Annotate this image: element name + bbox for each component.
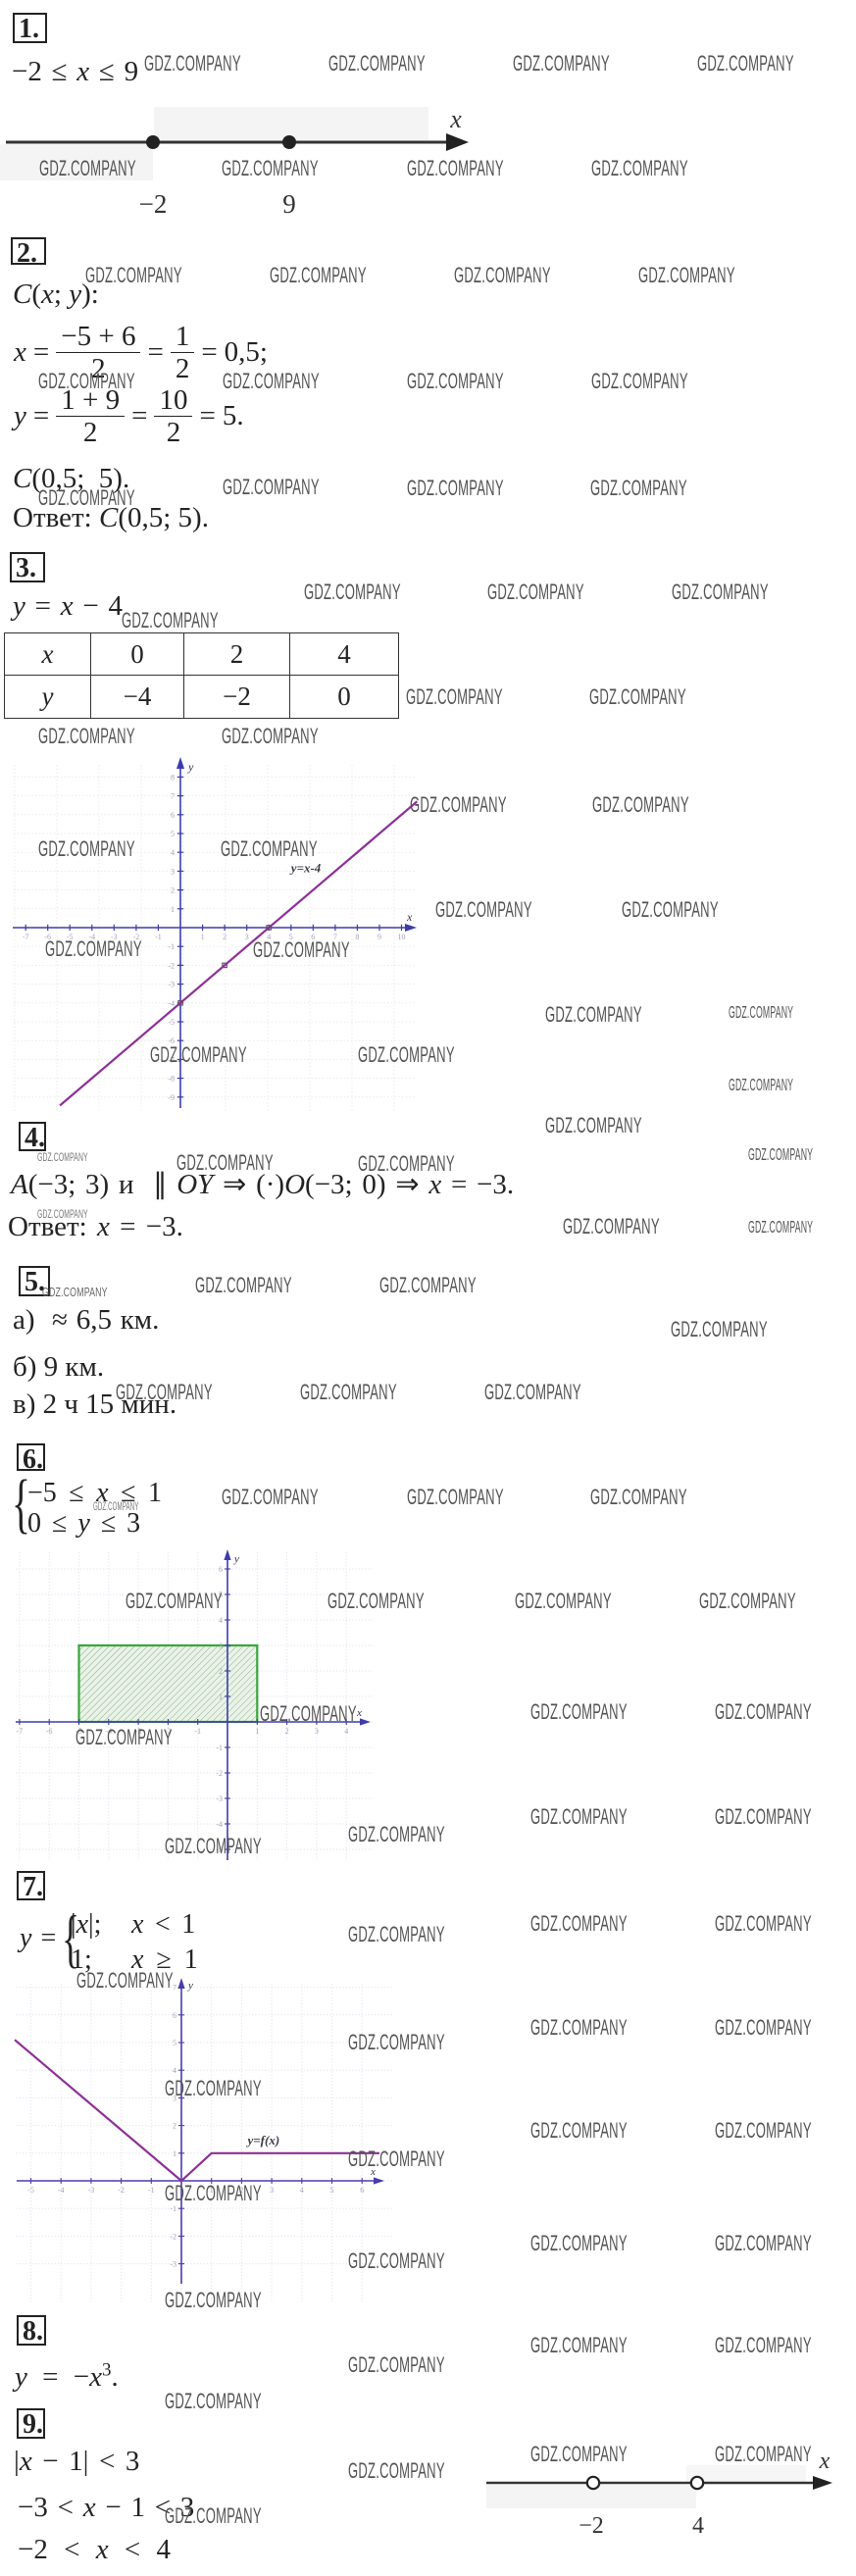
svg-text:4: 4 — [300, 2186, 304, 2195]
svg-text:4: 4 — [344, 1727, 348, 1736]
svg-text:-1: -1 — [148, 2186, 155, 2195]
svg-text:5: 5 — [330, 2186, 334, 2195]
svg-text:y=f(x): y=f(x) — [246, 2133, 280, 2147]
svg-text:9: 9 — [282, 189, 296, 219]
svg-text:7: 7 — [171, 792, 175, 801]
svg-text:4: 4 — [173, 2066, 176, 2075]
svg-text:1: 1 — [255, 1727, 259, 1736]
svg-text:6: 6 — [219, 1565, 223, 1574]
svg-text:1: 1 — [201, 933, 205, 941]
svg-text:6: 6 — [360, 2186, 364, 2195]
svg-text:3: 3 — [219, 1642, 223, 1650]
svg-text:-2: -2 — [118, 2186, 125, 2195]
svg-text:6: 6 — [173, 2011, 176, 2020]
svg-text:1: 1 — [173, 2149, 176, 2158]
svg-text:x: x — [819, 2449, 831, 2474]
svg-text:-5: -5 — [168, 1018, 175, 1027]
svg-text:-7: -7 — [17, 1727, 24, 1736]
svg-text:-4: -4 — [216, 1820, 223, 1829]
svg-text:8: 8 — [171, 773, 175, 782]
svg-text:−2: −2 — [139, 189, 168, 219]
svg-text:8: 8 — [355, 933, 359, 941]
svg-text:-6: -6 — [46, 1727, 53, 1736]
svg-text:-3: -3 — [216, 1794, 223, 1803]
svg-text:10: 10 — [398, 933, 406, 941]
svg-text:-1: -1 — [216, 1743, 223, 1752]
svg-text:1: 1 — [171, 905, 175, 914]
svg-text:2: 2 — [219, 1667, 223, 1676]
svg-text:5: 5 — [173, 2039, 176, 2047]
svg-text:-1: -1 — [168, 942, 175, 951]
svg-text:−2: −2 — [579, 2513, 604, 2539]
svg-text:-4: -4 — [168, 999, 175, 1008]
svg-text:y: y — [233, 1553, 239, 1565]
svg-text:4: 4 — [219, 1616, 223, 1625]
svg-text:-1: -1 — [170, 2204, 176, 2213]
svg-text:3: 3 — [171, 867, 175, 876]
svg-text:x: x — [356, 1707, 362, 1719]
svg-text:y=x-4: y=x-4 — [289, 860, 322, 875]
svg-text:2: 2 — [223, 933, 227, 941]
svg-text:y: y — [187, 760, 194, 774]
svg-text:5: 5 — [171, 830, 175, 838]
svg-text:x: x — [406, 910, 413, 924]
svg-text:y: y — [187, 1980, 193, 1992]
svg-text:-7: -7 — [23, 933, 29, 941]
svg-text:3: 3 — [245, 933, 249, 941]
svg-text:-8: -8 — [168, 1075, 175, 1084]
svg-text:2: 2 — [173, 2122, 176, 2131]
svg-text:-3: -3 — [168, 981, 175, 989]
svg-text:-2: -2 — [168, 961, 175, 970]
svg-text:4: 4 — [171, 848, 175, 857]
svg-text:-4: -4 — [58, 2186, 65, 2195]
svg-text:-2: -2 — [170, 2232, 176, 2241]
svg-text:x: x — [449, 105, 462, 133]
svg-text:-1: -1 — [194, 1727, 201, 1736]
svg-text:2: 2 — [171, 886, 175, 895]
svg-text:-9: -9 — [168, 1093, 175, 1102]
svg-text:6: 6 — [171, 811, 175, 820]
svg-text:3: 3 — [315, 1727, 319, 1736]
svg-text:-3: -3 — [170, 2260, 176, 2269]
svg-text:-5: -5 — [27, 2186, 34, 2195]
svg-text:9: 9 — [378, 933, 381, 941]
svg-text:4: 4 — [692, 2513, 704, 2539]
svg-text:-1: -1 — [155, 933, 162, 941]
svg-text:3: 3 — [270, 2186, 274, 2195]
svg-text:-2: -2 — [216, 1769, 223, 1778]
svg-text:-3: -3 — [88, 2186, 95, 2195]
svg-text:1: 1 — [219, 1692, 223, 1701]
svg-text:2: 2 — [285, 1727, 289, 1736]
